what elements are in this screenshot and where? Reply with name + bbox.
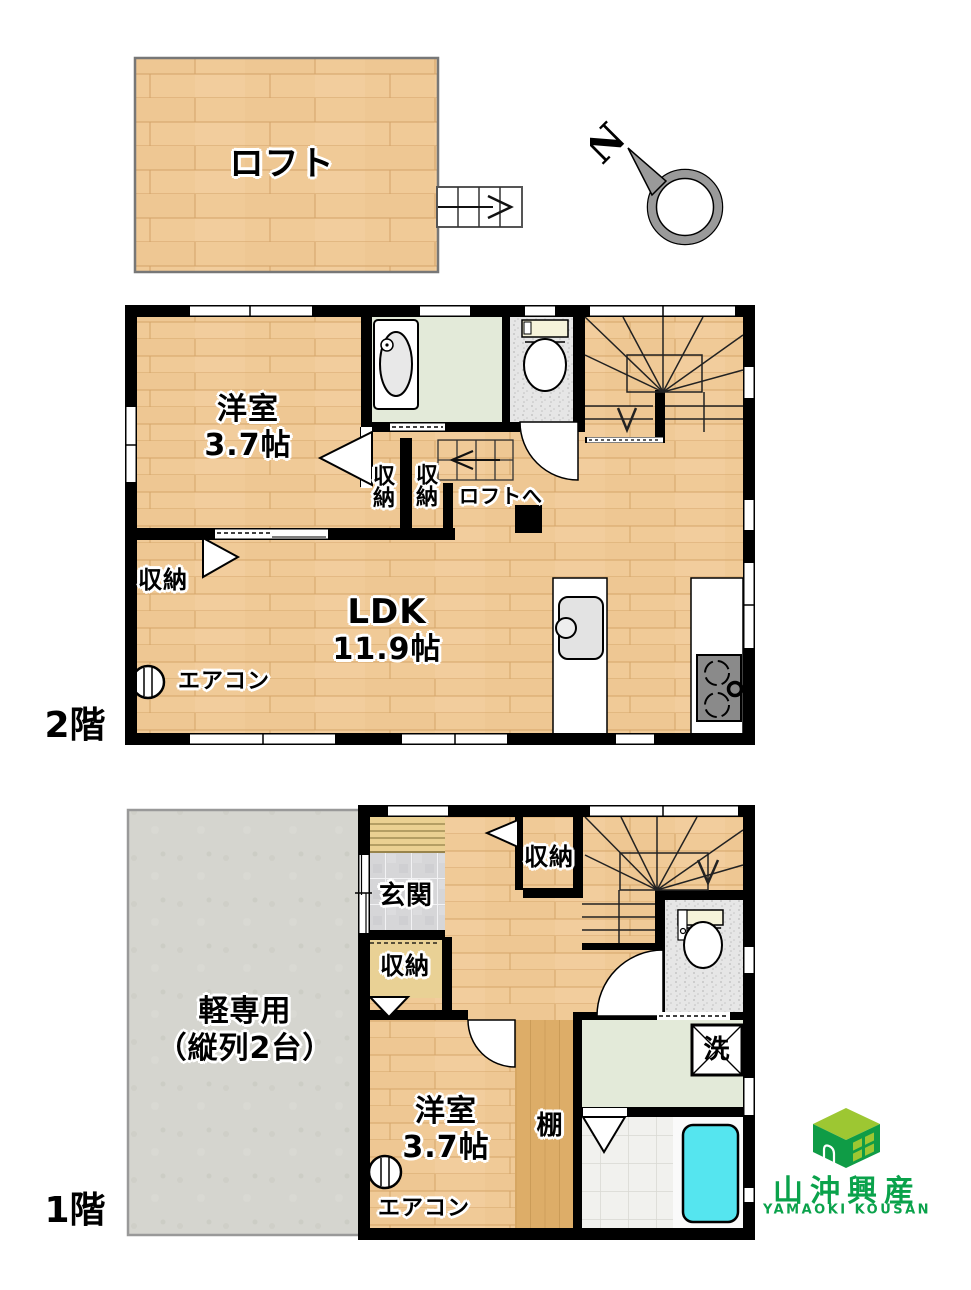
compass-north-label: N [590, 115, 635, 173]
room-size-western-1f: 3.7帖 [402, 1133, 489, 1163]
parking-label-line1: 軽専用 [199, 997, 292, 1027]
room-size-ldk: 11.9帖 [332, 635, 441, 665]
loft-plan: ロフト [125, 50, 545, 285]
floor2-washbasin [374, 320, 418, 409]
laundry-label: 洗 [703, 1037, 730, 1063]
floor2-plan: 洋室 3.7帖 収納 収納 ロフトへ LDK 11.9帖 収納 エアコン [125, 305, 755, 745]
floor2-label: 2階 [44, 696, 105, 748]
compass-ring-inner [657, 179, 714, 236]
to-loft-label: ロフトへ [459, 486, 543, 506]
room-size-western-2f: 3.7帖 [204, 431, 291, 461]
shelf-label: 棚 [536, 1113, 563, 1139]
compass-graphic: N [590, 115, 780, 285]
room-label-ldk: LDK [347, 595, 426, 629]
entrance-label: 玄関 [379, 883, 433, 909]
closet-label-left-2f: 収納 [138, 568, 188, 592]
company-logo: 山沖興産 YAMAOKI KOUSAN [780, 1100, 960, 1230]
company-romaji: YAMAOKI KOUSAN [763, 1203, 931, 1218]
kitchen-stove [697, 655, 741, 721]
loft-plan-graphic [125, 50, 545, 285]
closet-label-left-1f: 収納 [380, 954, 430, 978]
compass: N [590, 115, 780, 285]
closet-label-center-left-2f: 収納 [370, 464, 392, 508]
floor1-plan: 軽専用 （縦列2台） 玄関 収納 収納 洋室 3.7帖 棚 洗 エアコン [125, 800, 755, 1245]
parking-label-line2: （縦列2台） [157, 1034, 334, 1064]
closet-label-top-1f: 収納 [524, 845, 574, 869]
loft-room-label: ロフト [230, 147, 335, 181]
loft-stairs [437, 187, 522, 227]
entrance-door [360, 855, 369, 933]
floorplan-page: ロフト N [0, 0, 971, 1290]
floor1-aircon-icon [369, 1156, 401, 1188]
aircon-label-2f: エアコン [178, 671, 270, 693]
aircon-label-1f: エアコン [378, 1198, 470, 1220]
closet-label-center-right-2f: 収納 [413, 463, 435, 507]
room-label-western-2f: 洋室 [217, 395, 279, 425]
entrance-step [368, 817, 445, 853]
bathtub [683, 1125, 738, 1222]
logo-house-cube-icon [813, 1108, 880, 1168]
floor1-label: 1階 [44, 1181, 105, 1233]
floor2-toilet-fixture [522, 320, 568, 391]
kitchen-faucet [556, 618, 576, 638]
room-label-western-1f: 洋室 [415, 1097, 477, 1127]
